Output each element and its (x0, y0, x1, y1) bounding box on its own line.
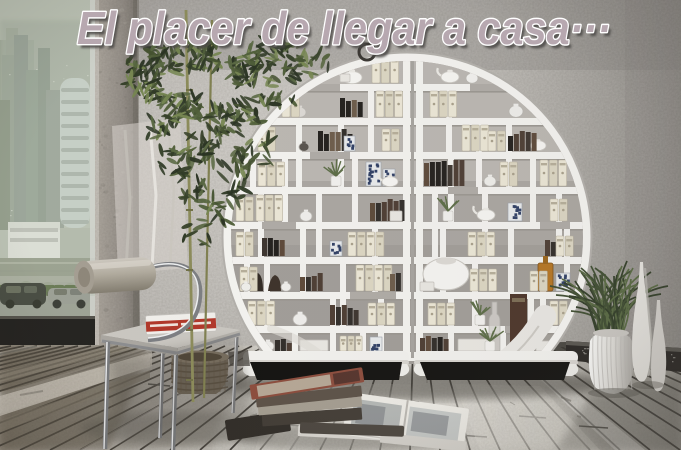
svg-text:El placer de llegar a casa···: El placer de llegar a casa··· (77, 2, 611, 54)
